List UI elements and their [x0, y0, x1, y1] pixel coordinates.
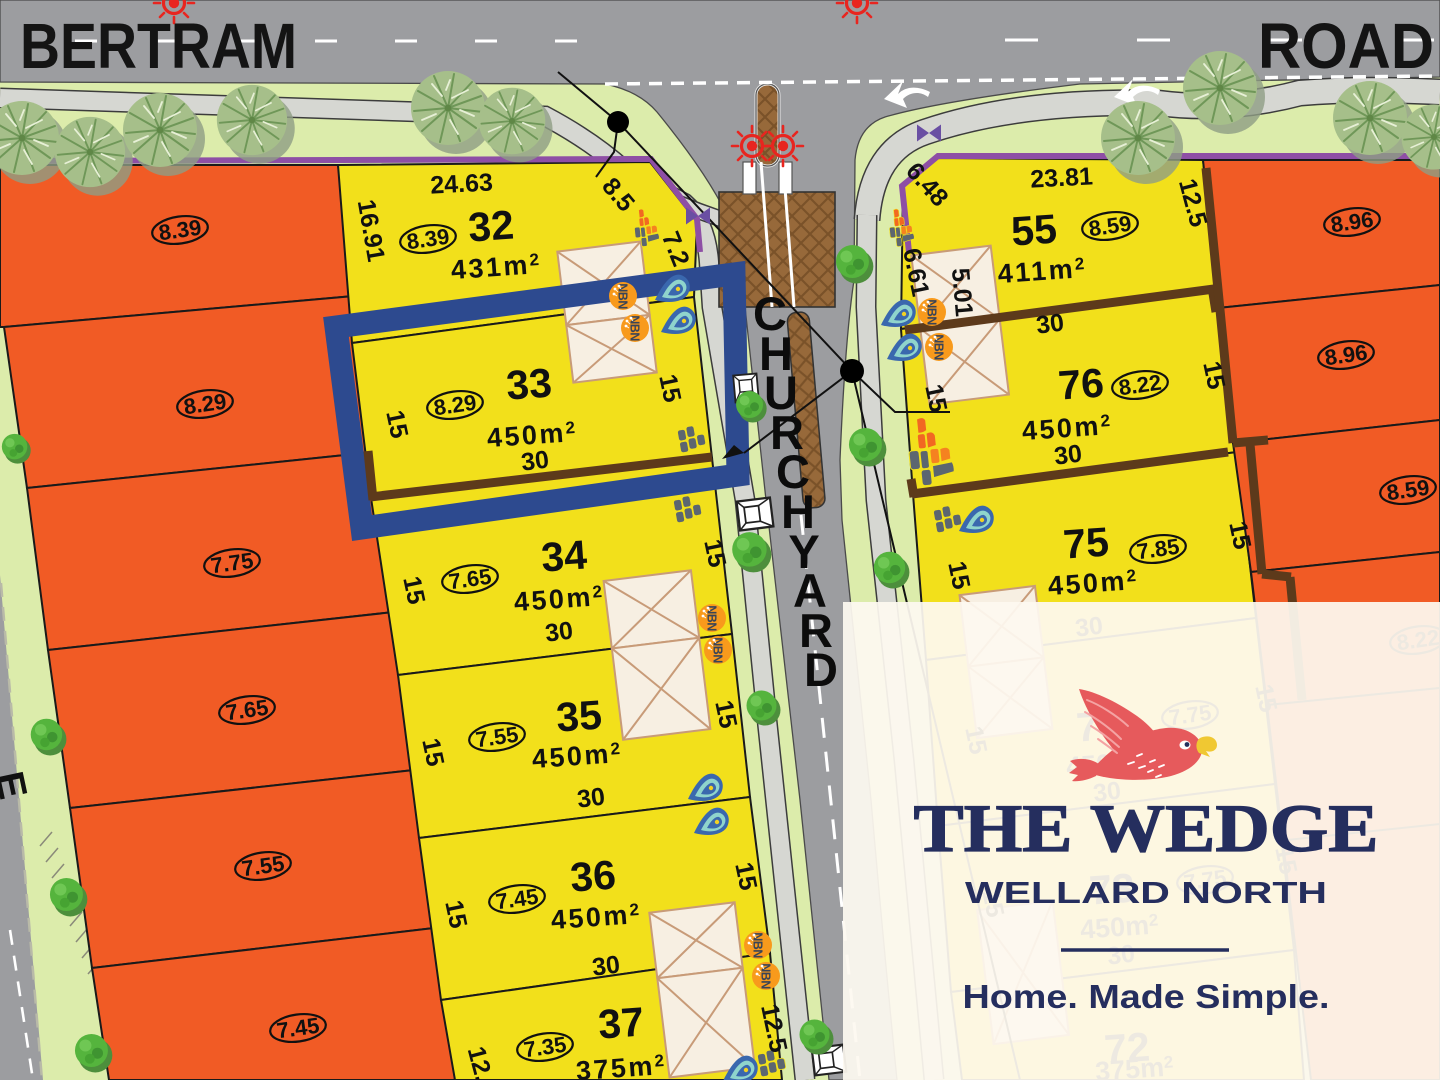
svg-text:24.63: 24.63: [430, 168, 494, 199]
svg-text:375m2: 375m2: [575, 1050, 668, 1080]
svg-text:55: 55: [1010, 205, 1059, 254]
svg-text:431m2: 431m2: [450, 249, 543, 285]
svg-text:30: 30: [544, 616, 575, 647]
svg-text:D: D: [804, 643, 838, 696]
svg-text:Home. Made Simple.: Home. Made Simple.: [963, 978, 1330, 1015]
svg-text:30: 30: [1035, 308, 1066, 339]
svg-text:15: 15: [942, 559, 975, 592]
svg-text:34: 34: [540, 531, 589, 580]
svg-text:ROAD: ROAD: [1258, 10, 1434, 82]
svg-text:32: 32: [467, 201, 516, 250]
svg-text:36: 36: [569, 851, 618, 900]
svg-text:5.01: 5.01: [946, 267, 978, 318]
svg-text:15: 15: [1197, 359, 1230, 392]
svg-text:23.81: 23.81: [1030, 162, 1094, 193]
svg-text:15: 15: [416, 736, 449, 769]
svg-text:30: 30: [576, 782, 607, 813]
svg-text:WELLARD NORTH: WELLARD NORTH: [965, 875, 1327, 910]
svg-text:15: 15: [729, 860, 762, 893]
svg-text:37: 37: [597, 998, 646, 1047]
svg-text:30: 30: [520, 445, 551, 476]
svg-text:15: 15: [1223, 519, 1256, 552]
svg-text:450m2: 450m2: [513, 581, 606, 617]
svg-text:450m2: 450m2: [550, 899, 643, 935]
svg-text:15: 15: [698, 537, 731, 570]
svg-text:30: 30: [591, 950, 622, 981]
svg-text:15: 15: [397, 574, 430, 607]
svg-text:15: 15: [439, 898, 472, 931]
svg-text:BERTRAM: BERTRAM: [20, 10, 297, 82]
svg-text:33: 33: [505, 359, 554, 408]
svg-text:30: 30: [1053, 439, 1084, 470]
svg-text:76: 76: [1057, 359, 1106, 408]
svg-text:411m2: 411m2: [997, 253, 1088, 289]
svg-text:450m2: 450m2: [1047, 565, 1140, 601]
svg-text:75: 75: [1062, 518, 1111, 567]
svg-text:THE WEDGE: THE WEDGE: [914, 790, 1379, 866]
svg-text:15: 15: [919, 382, 952, 415]
svg-text:15: 15: [380, 408, 413, 441]
svg-text:35: 35: [555, 691, 604, 740]
svg-text:15: 15: [653, 372, 686, 405]
svg-text:450m2: 450m2: [531, 738, 624, 774]
svg-text:15: 15: [709, 698, 742, 731]
